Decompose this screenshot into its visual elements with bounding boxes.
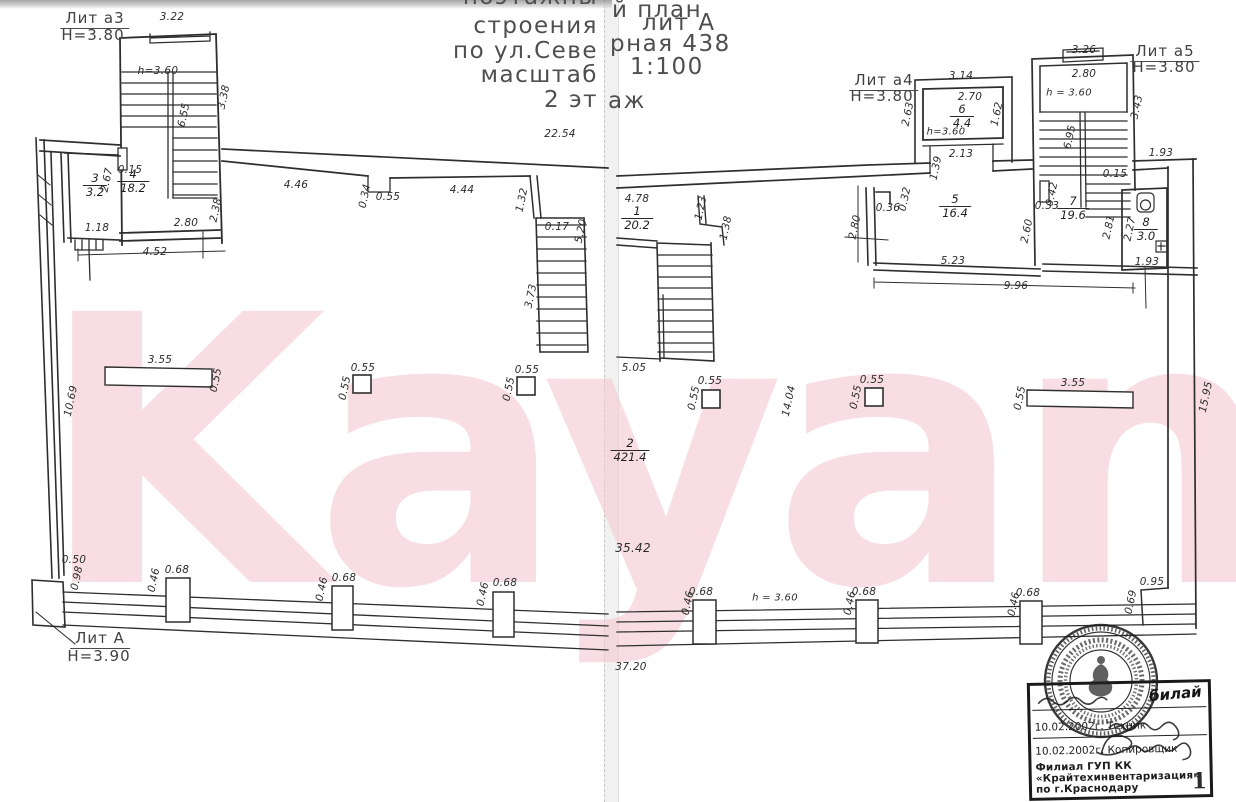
page-number: 1: [1191, 768, 1207, 794]
bottom-wall-right: [617, 600, 1196, 646]
scan-artifact-top: [0, 0, 612, 9]
columns-left: [105, 367, 535, 395]
annex-room3: [61, 153, 120, 280]
columns-right: [702, 388, 1133, 408]
left-outer-wall: [32, 138, 75, 644]
lit-a4-block: [915, 77, 1012, 164]
room1-and-stair-right: [617, 186, 888, 361]
stamp-org-line3: по г.Краснодару: [1036, 780, 1206, 796]
toilet-room8: [1043, 188, 1197, 308]
signature-name: билай: [1149, 682, 1203, 705]
lit-a5-block: [1032, 48, 1135, 265]
mid-stair-left: [536, 218, 588, 352]
inventory-stamp: билай 10.02.2002г. Техник 10.02.2002г. К…: [1027, 679, 1213, 801]
stair-lit-a3: [78, 32, 225, 261]
right-outer-wall: [1141, 159, 1196, 628]
stamp-tech-line: 10.02.2002г. Техник: [1035, 718, 1205, 734]
floor-plan-scan: Kayan: [0, 0, 1236, 802]
stamp-copyist-line: 10.02.2002г. Копировщик: [1035, 742, 1205, 758]
room5: [866, 188, 1135, 293]
bottom-wall-left: [63, 578, 608, 650]
